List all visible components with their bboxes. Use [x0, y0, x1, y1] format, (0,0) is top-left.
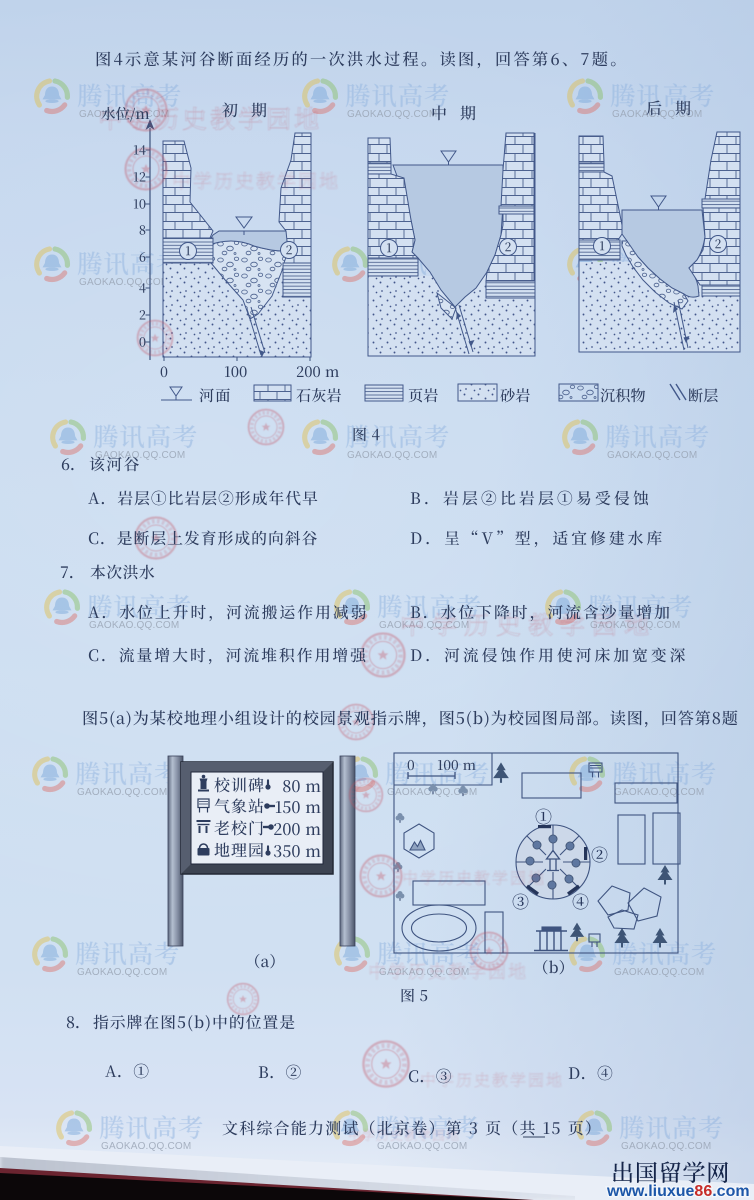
svg-text:www.liuxue86.com: www.liuxue86.com	[606, 1183, 750, 1200]
